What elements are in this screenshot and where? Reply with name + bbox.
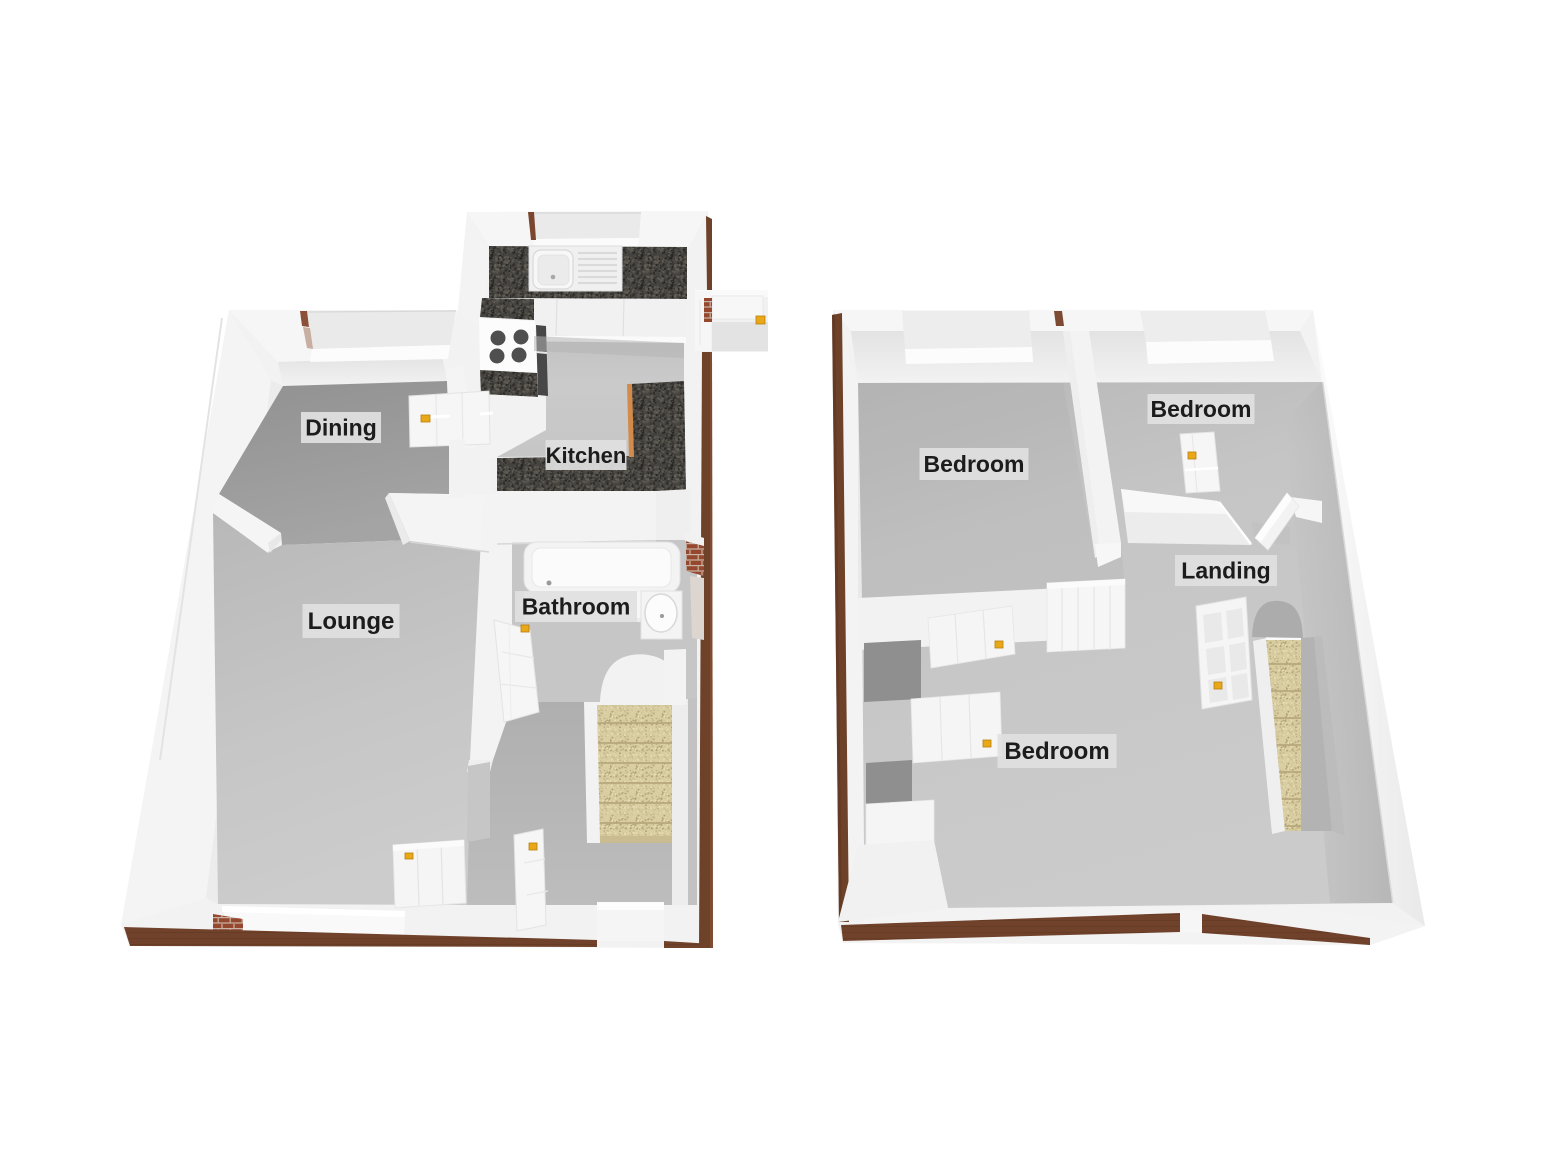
svg-text:Lounge: Lounge	[308, 608, 395, 635]
svg-text:Kitchen: Kitchen	[546, 443, 627, 468]
svg-text:Bathroom: Bathroom	[522, 594, 631, 620]
svg-text:Bedroom: Bedroom	[1004, 738, 1109, 765]
svg-text:Bedroom: Bedroom	[1151, 396, 1252, 422]
svg-text:Bedroom: Bedroom	[924, 451, 1025, 477]
svg-text:Landing: Landing	[1181, 558, 1270, 584]
svg-text:Dining: Dining	[305, 415, 377, 441]
